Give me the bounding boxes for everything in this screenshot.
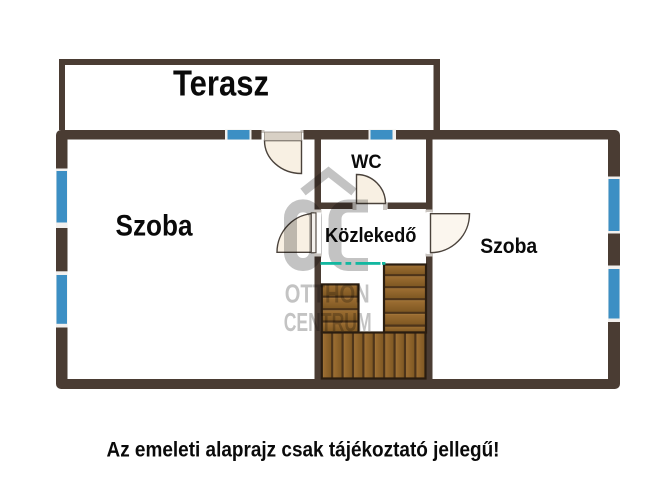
svg-text:Szoba: Szoba xyxy=(116,210,194,243)
svg-text:Az emeleti alaprajz csak tájék: Az emeleti alaprajz csak tájékoztató jel… xyxy=(107,439,500,462)
svg-text:WC: WC xyxy=(351,151,382,173)
svg-text:Szoba: Szoba xyxy=(480,235,537,258)
svg-text:Terasz: Terasz xyxy=(173,63,269,104)
svg-text:OTTHON: OTTHON xyxy=(285,281,370,309)
svg-text:CENTRUM: CENTRUM xyxy=(284,309,372,337)
